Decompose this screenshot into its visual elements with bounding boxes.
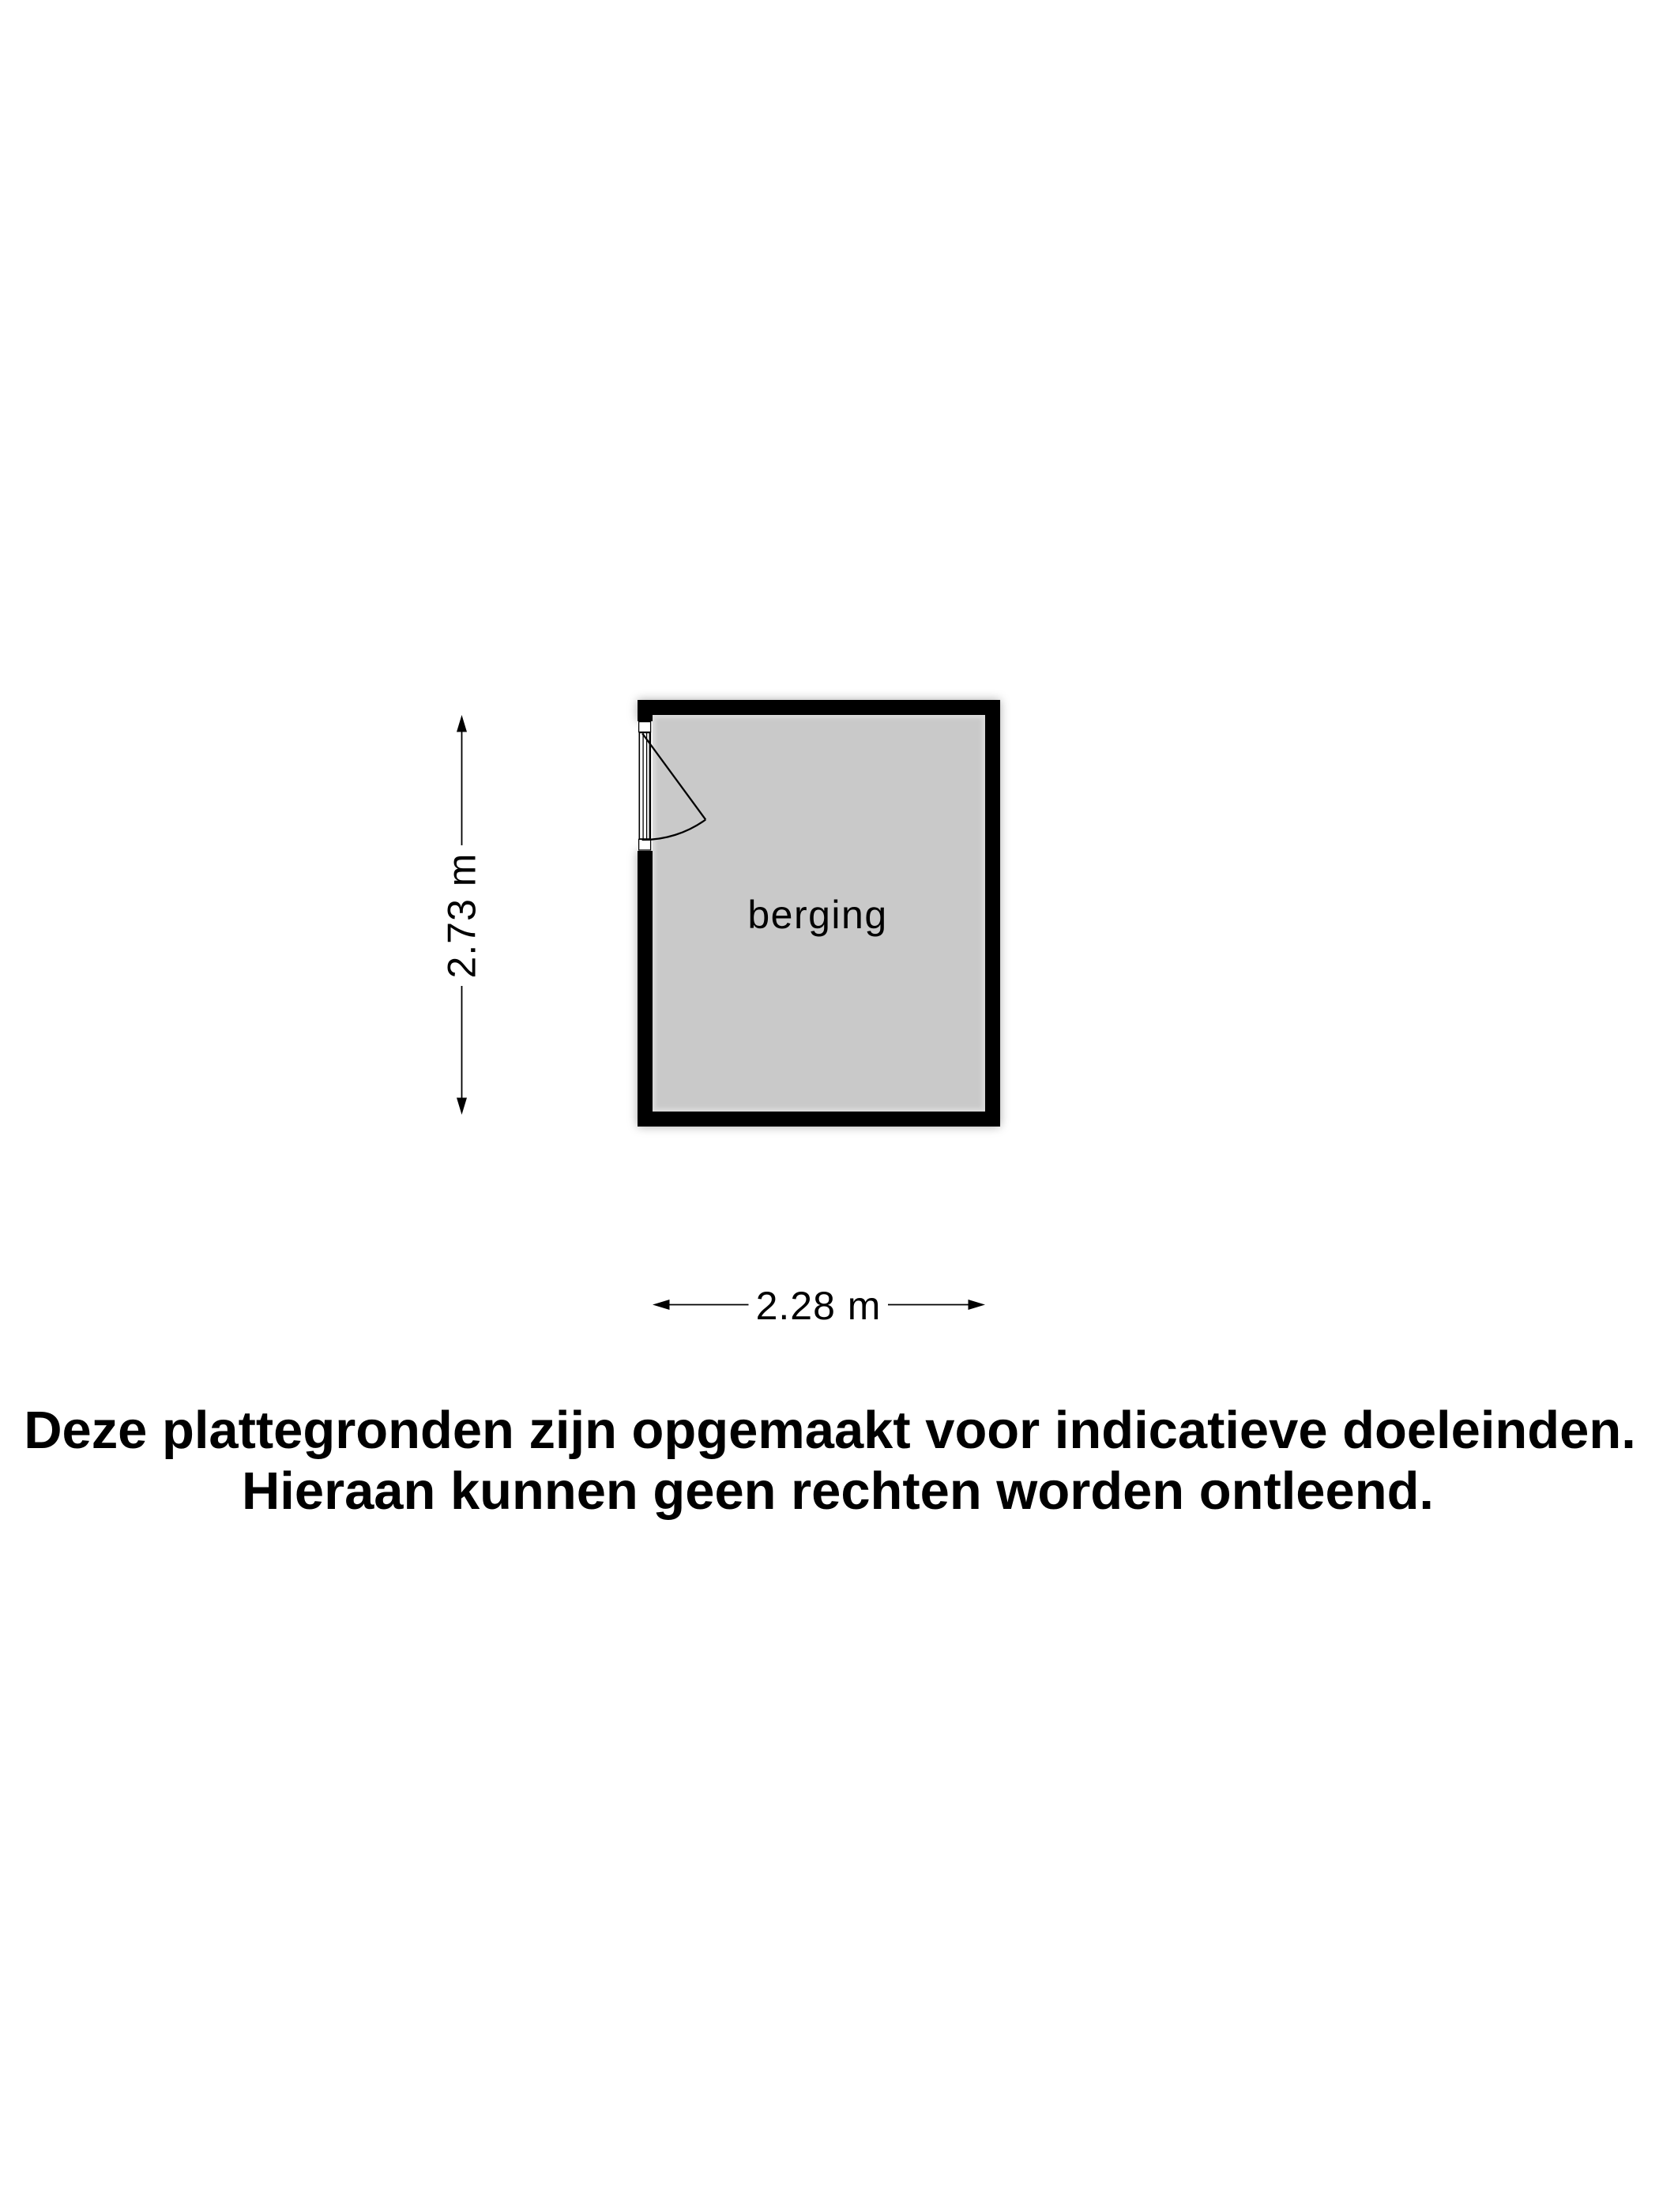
svg-text:2.28 m: 2.28 m <box>756 1284 882 1328</box>
svg-text:Deze plattegronden zijn opgema: Deze plattegronden zijn opgemaakt voor i… <box>24 1401 1636 1460</box>
svg-text:2.73 m: 2.73 m <box>440 853 484 979</box>
svg-text:berging: berging <box>747 893 887 937</box>
svg-text:Hieraan kunnen geen rechten wo: Hieraan kunnen geen rechten worden ontle… <box>242 1461 1434 1521</box>
